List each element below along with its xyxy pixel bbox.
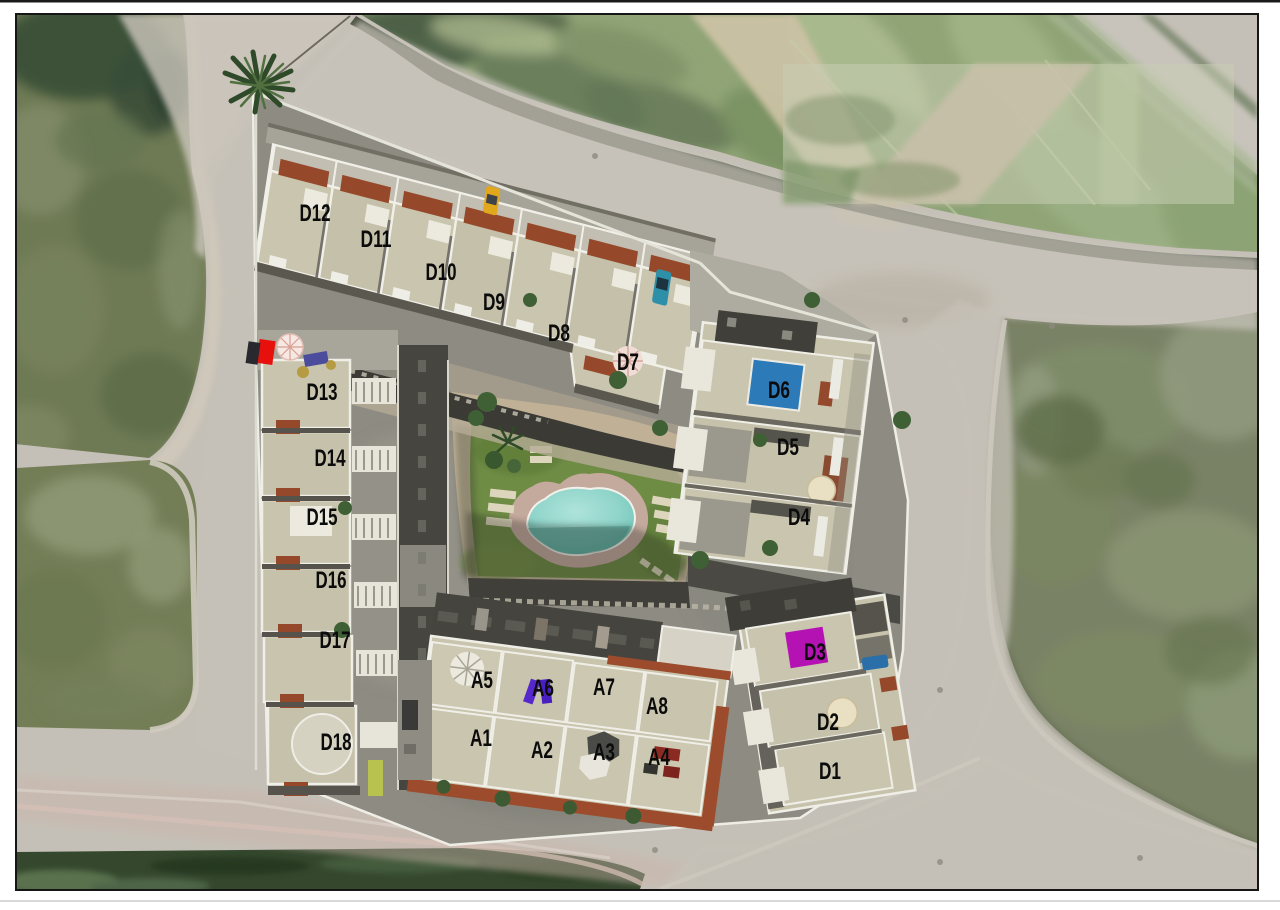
svg-text:D3: D3: [804, 639, 826, 666]
svg-text:A3: A3: [593, 739, 615, 766]
svg-text:A1: A1: [470, 725, 492, 752]
svg-text:D14: D14: [315, 445, 346, 472]
svg-text:D1: D1: [819, 758, 841, 785]
svg-text:D11: D11: [361, 226, 392, 253]
svg-text:D5: D5: [777, 434, 799, 461]
svg-text:A4: A4: [648, 744, 670, 771]
svg-text:A7: A7: [593, 674, 615, 701]
svg-text:D9: D9: [483, 289, 505, 316]
svg-text:A6: A6: [532, 675, 554, 702]
svg-text:D18: D18: [321, 729, 352, 756]
svg-text:A8: A8: [646, 693, 668, 720]
svg-text:D7: D7: [617, 349, 639, 376]
svg-text:D6: D6: [768, 377, 790, 404]
svg-text:D15: D15: [307, 504, 338, 531]
svg-text:A5: A5: [471, 667, 493, 694]
svg-text:D4: D4: [788, 504, 810, 531]
svg-text:D8: D8: [548, 320, 570, 347]
svg-text:D13: D13: [307, 379, 338, 406]
svg-text:D12: D12: [300, 200, 331, 227]
svg-text:D10: D10: [426, 259, 457, 286]
svg-text:D17: D17: [320, 627, 351, 654]
svg-text:D16: D16: [316, 567, 347, 594]
svg-text:D2: D2: [817, 709, 839, 736]
svg-text:A2: A2: [531, 737, 553, 764]
